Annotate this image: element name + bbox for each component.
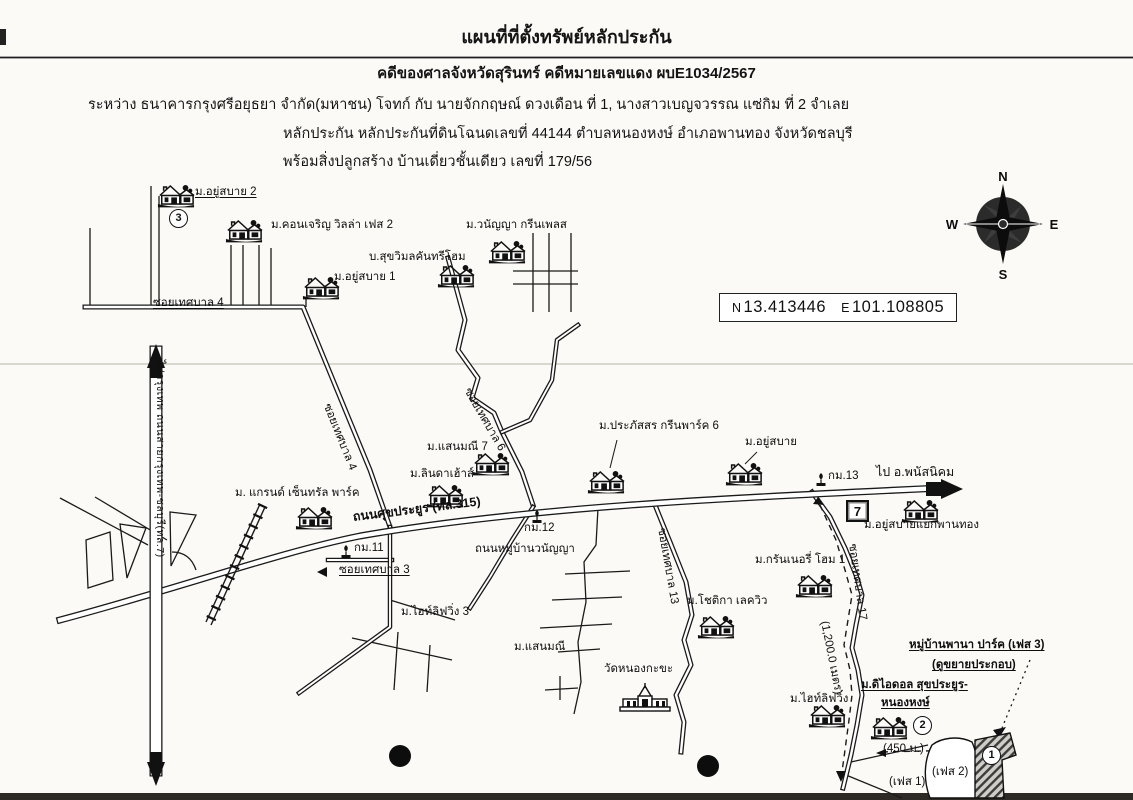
seven-eleven-label: 7 [854,504,861,519]
phase3-parcel-hatched [975,733,1016,798]
village-label-grannery-home1: ม.กรันเนอรี่ โฮม 1 [755,554,845,568]
compass-rose: N S W E [946,169,1059,282]
compass-south-label: S [999,267,1008,282]
village-label-prapassorn: ม.ประภัสสร กรีนพาร์ค 6 [599,420,719,434]
annotation-phase1: (เฟส 1) [889,776,925,790]
circle-number-2: 2 [913,716,932,735]
compass-east-label: E [1050,217,1059,232]
village-label-chotika-lakeview: ม.โชติกา เลควิว [687,595,767,609]
latitude-label: N [732,301,742,315]
road-label-to-phanatnikhom: ไป อ.พนัสนิคม [876,465,954,480]
circle-number-3: 3 [169,209,188,228]
collateral-line: หลักประกัน หลักประกันที่ดินโฉนดเลขที่ 44… [283,122,853,145]
case-number-line: คดีของศาลจังหวัดสุรินทร์ คดีหมายเลขแดง ผ… [0,61,1133,85]
milestone-label-km12: กม.12 [524,522,555,536]
distance-label-450m: (450 ม.) [883,743,924,757]
house-icon [697,614,735,639]
house-icon [587,469,625,494]
km-marker-icon [816,473,826,487]
circle-number-1: 1 [982,746,1001,765]
road-label-soi-thetsaban4: ซอยเทศบาล 4 [153,297,224,311]
village-label-grand-central-park: ม. แกรนด์ เซ็นทรัล พาร์ค [235,487,360,501]
village-label-hilife3: ม.ไฮท์ลิฟวิ่ง 3 [401,606,469,620]
village-label-the-idol-line1: ม.ดิไอดอล สุขประยูร- [861,679,968,693]
road-label-soi-thetsaban3: ซอยเทศบาล 3 [339,564,410,578]
punch-hole-icon [389,745,411,767]
milestone-label-km11: กม.11 [354,542,384,556]
village-label-yusabai2: ม.อยู่สบาย 2 [195,186,257,200]
annotation-phase2: (เฟส 2) [932,766,968,780]
parties-line: ระหว่าง ธนาคารกรุงศรีอยุธยา จำกัด(มหาชน)… [88,93,849,116]
compass-north-label: N [998,169,1007,184]
annotation-pana-park: หมู่บ้านพานา ปาร์ค (เฟส 3) [909,639,1045,653]
village-label-wananya-greenplace: ม.วนัญญา กรีนเพลส [466,219,567,233]
house-icon [488,239,526,264]
km-marker-icon [341,545,351,559]
punch-hole-icon [697,755,719,777]
house-icon [795,573,833,598]
house-icon [295,505,333,530]
building-line: พร้อมสิ่งปลูกสร้าง บ้านเดี่ยวชั้นเดียว เ… [283,150,592,173]
village-label-linda-house: ม.ลินดาเฮ้าส์ [410,468,474,482]
village-label-khonjaroen: ม.คอนเจริญ วิลล่า เฟส 2 [271,219,393,233]
longitude-label: E [841,301,850,315]
temple-icon [617,682,673,714]
page-title: แผนที่ที่ตั้งทรัพย์หลักประกัน [0,22,1133,51]
village-label-saenmanee7: ม.แสนมณี 7 [427,441,488,455]
latitude-value: 13.413446 [744,298,827,316]
document-page: N S W E แผนที่ที่ตั้งทรัพย์หลักประกัน คด… [0,0,1133,800]
road-label-wananya-road: ถนนหมู่บ้านวนัญญา [475,543,575,557]
road-wananya-grid-branch [502,325,578,432]
house-icon [437,263,475,288]
coordinates-box: N13.413446 E101.108805 [719,293,957,322]
compass-west-label: W [946,217,959,232]
annotation-see-enlargement: (ดูขยายประกอบ) [932,659,1016,673]
longitude-value: 101.108805 [852,298,944,316]
village-label-hilife: ม.ไฮท์ลิฟวิ่ง [790,693,848,707]
village-label-the-idol-line2: หนองหงษ์ [881,697,930,711]
road-label-highway7: ไปกรุงเทพ ถนนสายกรุงเทพ-ชลบุรี(ทล.7) [153,360,166,558]
house-icon [725,461,763,486]
house-icon [157,183,195,208]
village-label-sukwimol: บ.สุขวิมลคันทรีโฮม [369,251,466,265]
village-label-yusabai-phanthong: ม.อยู่สบายแยกพานทอง [864,519,979,533]
temple-label-wat-nongkakha: วัดหนองกะขะ [604,663,673,677]
village-label-yusabai: ม.อยู่สบาย [745,436,797,450]
milestone-label-km13: กม.13 [828,470,859,484]
house-icon [225,218,263,243]
village-label-yusabai1: ม.อยู่สบาย 1 [334,271,396,285]
village-label-saenmanee: ม.แสนมณี [514,641,565,655]
house-icon [870,715,908,740]
